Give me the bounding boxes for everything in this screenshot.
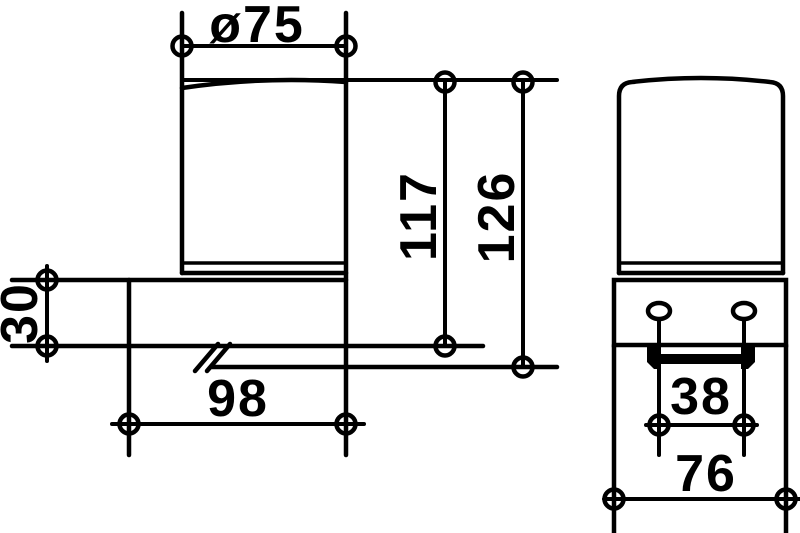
dimension-drawing: ø75 30 117 126 98 [0, 0, 800, 533]
bracket-height-label: 30 [0, 282, 49, 344]
front-view: ø75 30 117 126 98 [0, 0, 557, 455]
drawing-canvas: ø75 30 117 126 98 [0, 0, 800, 533]
width-front-label: 98 [207, 370, 269, 428]
hole-spacing-label: 38 [670, 368, 732, 426]
height-overall-label: 126 [468, 171, 526, 264]
dimension-bracket-width: 76 [604, 445, 800, 509]
dimension-diameter: ø75 [173, 0, 356, 56]
ring-leg-left-side [647, 345, 661, 369]
dimension-hole-spacing: 38 [646, 368, 757, 435]
ring-bar-side [661, 354, 741, 364]
ring-leg-right-side [741, 345, 755, 369]
mounting-slot-right [733, 303, 755, 319]
bracket-width-label: 76 [675, 445, 737, 503]
bracket-plate-side [614, 280, 786, 345]
side-view: 38 76 [604, 78, 800, 533]
height-inner-label: 117 [390, 171, 448, 261]
dimension-height-inner: 117 [390, 73, 455, 356]
dimension-width-front: 98 [112, 370, 364, 434]
dimension-height-overall: 126 [468, 73, 533, 377]
mounting-slot-left [648, 303, 670, 319]
cup-outline-side [619, 78, 783, 273]
diameter-label: ø75 [209, 0, 305, 54]
